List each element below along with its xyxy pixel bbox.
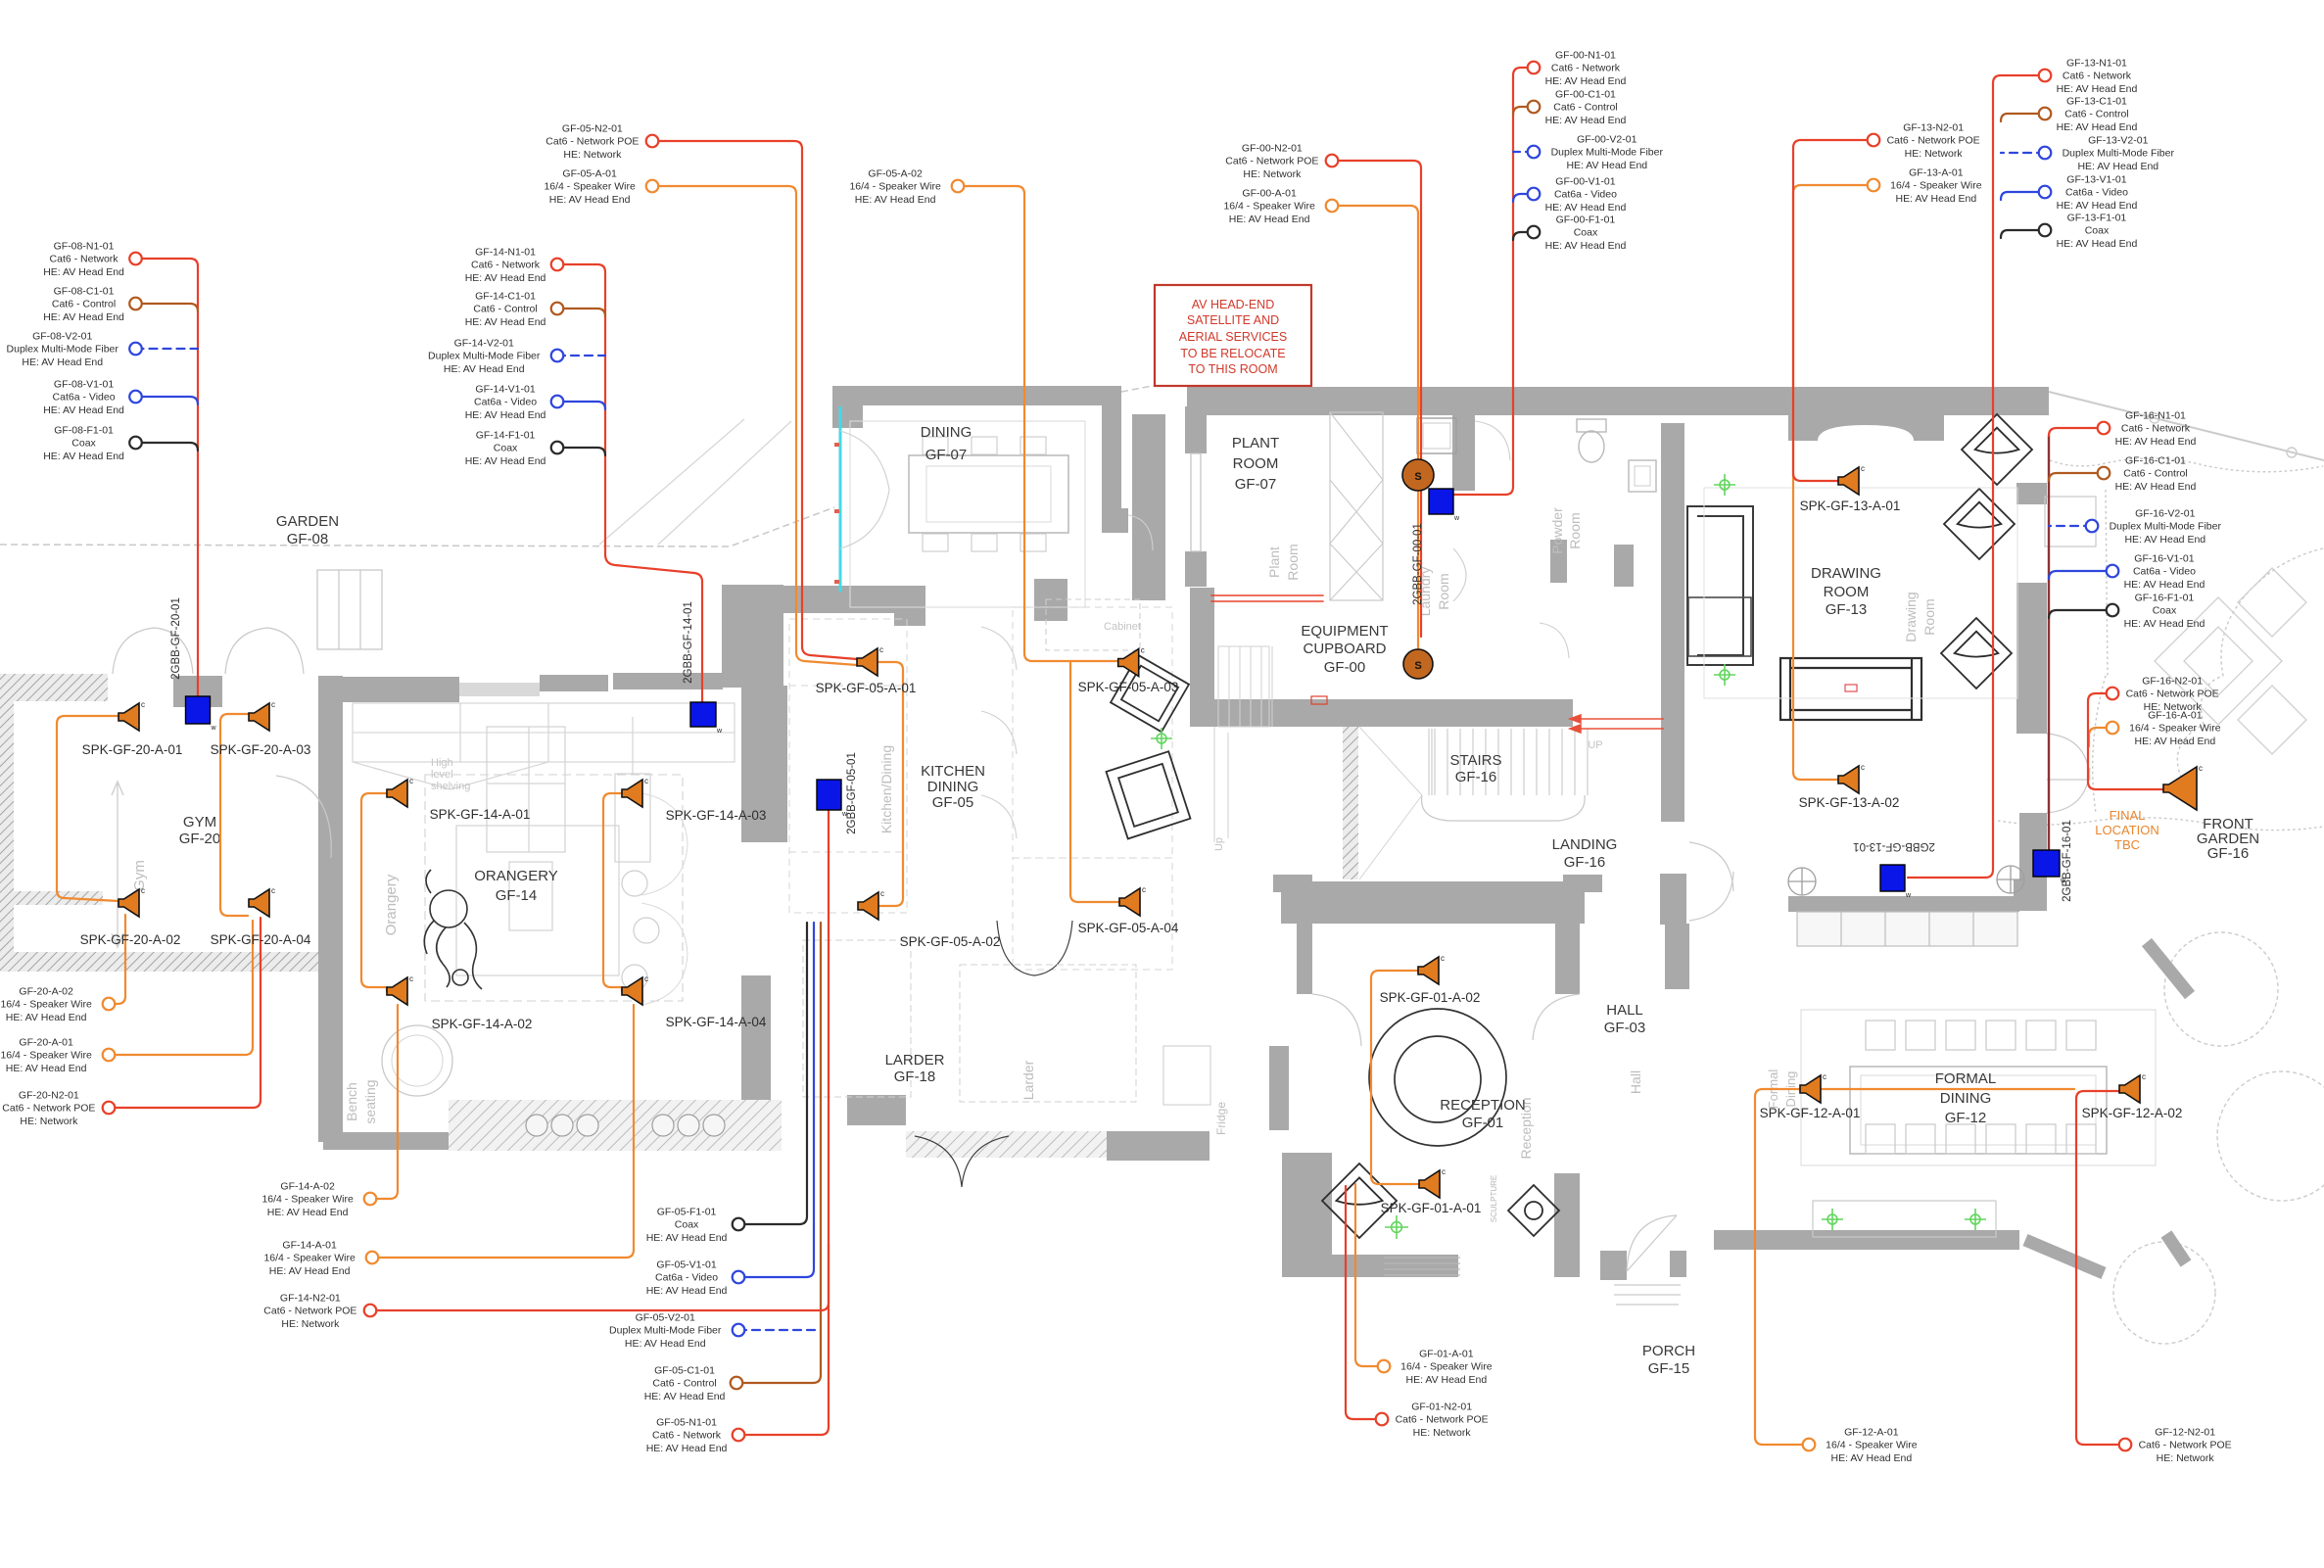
svg-text:HE: AV Head End: HE: AV Head End <box>2057 238 2138 250</box>
svg-text:Cat6a - Video: Cat6a - Video <box>2065 187 2128 199</box>
svg-text:Cat6 - Control: Cat6 - Control <box>652 1378 716 1390</box>
svg-text:c: c <box>2199 764 2203 773</box>
svg-text:GF-07: GF-07 <box>925 447 968 463</box>
svg-text:16/4 - Speaker Wire: 16/4 - Speaker Wire <box>849 181 941 193</box>
svg-text:SPK-GF-05-A-03: SPK-GF-05-A-03 <box>1078 680 1179 694</box>
svg-text:HE: AV Head End: HE: AV Head End <box>1406 1374 1488 1386</box>
svg-text:16/4 - Speaker Wire: 16/4 - Speaker Wire <box>1826 1440 1918 1451</box>
svg-text:Cat6 - Network POE: Cat6 - Network POE <box>2126 689 2219 700</box>
svg-text:GF-13-N1-01: GF-13-N1-01 <box>2066 57 2127 69</box>
svg-text:16/4 - Speaker Wire: 16/4 - Speaker Wire <box>544 181 636 193</box>
svg-text:HE: AV Head End: HE: AV Head End <box>2057 200 2138 212</box>
svg-text:c: c <box>644 974 648 983</box>
svg-text:GF-16-N1-01: GF-16-N1-01 <box>2125 409 2186 421</box>
svg-text:GF-13-V2-01: GF-13-V2-01 <box>2088 134 2148 146</box>
svg-text:GF-20-A-02: GF-20-A-02 <box>19 985 73 997</box>
svg-text:SPK-GF-05-A-01: SPK-GF-05-A-01 <box>816 681 917 695</box>
svg-text:c: c <box>141 700 145 709</box>
svg-text:GF-13: GF-13 <box>1826 601 1868 618</box>
svg-text:PORCH: PORCH <box>1642 1343 1695 1359</box>
svg-text:w: w <box>1453 515 1460 522</box>
svg-text:Cat6 - Control: Cat6 - Control <box>52 299 116 310</box>
svg-text:16/4 - Speaker Wire: 16/4 - Speaker Wire <box>0 1050 92 1062</box>
svg-text:GF-00-C1-01: GF-00-C1-01 <box>1555 88 1616 100</box>
svg-text:Gym: Gym <box>131 860 148 891</box>
svg-text:GF-14-F1-01: GF-14-F1-01 <box>476 429 536 441</box>
svg-text:c: c <box>1442 1167 1446 1176</box>
svg-text:HE: AV Head End: HE: AV Head End <box>1545 240 1627 252</box>
svg-text:Cabinet: Cabinet <box>1104 621 1141 633</box>
svg-text:GF-05-C1-01: GF-05-C1-01 <box>654 1364 715 1376</box>
svg-text:HE: AV Head End: HE: AV Head End <box>2057 121 2138 133</box>
svg-text:HE: AV Head End: HE: AV Head End <box>2115 436 2197 448</box>
svg-text:HE: AV Head End: HE: AV Head End <box>465 455 546 467</box>
svg-text:2GBB-GF-00-01: 2GBB-GF-00-01 <box>1412 523 1424 605</box>
svg-text:GF-05-A-02: GF-05-A-02 <box>868 167 923 179</box>
svg-text:GF-00-N1-01: GF-00-N1-01 <box>1555 49 1616 61</box>
svg-text:Coax: Coax <box>2085 225 2110 237</box>
svg-text:2GBB-GF-20-01: 2GBB-GF-20-01 <box>170 597 182 680</box>
svg-text:GF-05-F1-01: GF-05-F1-01 <box>657 1206 717 1217</box>
svg-text:HE: Network: HE: Network <box>1413 1427 1472 1439</box>
svg-text:seating: seating <box>362 1079 378 1123</box>
svg-text:16/4 - Speaker Wire: 16/4 - Speaker Wire <box>261 1194 354 1206</box>
svg-text:c: c <box>1861 464 1865 473</box>
svg-text:HE: AV Head End: HE: AV Head End <box>855 194 936 206</box>
svg-text:Larder: Larder <box>1020 1060 1036 1100</box>
svg-text:DINING: DINING <box>927 779 979 795</box>
svg-text:HE: AV Head End: HE: AV Head End <box>43 404 124 416</box>
svg-text:GF-14-A-01: GF-14-A-01 <box>282 1239 337 1251</box>
svg-text:SATELLITE AND: SATELLITE AND <box>1187 313 1279 327</box>
svg-text:GF-16: GF-16 <box>1455 769 1497 785</box>
svg-text:level: level <box>431 769 453 781</box>
svg-text:Cat6 - Network POE: Cat6 - Network POE <box>1887 135 1980 147</box>
svg-text:GF-01: GF-01 <box>1462 1115 1504 1131</box>
svg-text:Drawing: Drawing <box>1903 592 1919 641</box>
svg-text:GF-05-V2-01: GF-05-V2-01 <box>636 1311 695 1323</box>
svg-text:HE: AV Head End: HE: AV Head End <box>6 1012 87 1023</box>
svg-text:c: c <box>409 777 413 785</box>
svg-text:HE: Network: HE: Network <box>281 1318 340 1330</box>
svg-text:HE: AV Head End: HE: AV Head End <box>2135 736 2216 747</box>
svg-text:RECEPTION: RECEPTION <box>1440 1097 1526 1114</box>
svg-text:HE: AV Head End: HE: AV Head End <box>1545 202 1627 214</box>
svg-text:LARDER: LARDER <box>885 1052 945 1069</box>
svg-text:GF-14-C1-01: GF-14-C1-01 <box>475 290 536 302</box>
svg-text:GARDEN: GARDEN <box>276 513 339 530</box>
svg-text:SPK-GF-05-A-02: SPK-GF-05-A-02 <box>900 934 1001 949</box>
svg-text:FINAL: FINAL <box>2110 808 2146 823</box>
svg-text:2GBB-GF-05-01: 2GBB-GF-05-01 <box>846 752 858 834</box>
svg-text:HALL: HALL <box>1606 1002 1643 1019</box>
svg-text:HE: AV Head End: HE: AV Head End <box>465 316 546 328</box>
svg-text:16/4 - Speaker Wire: 16/4 - Speaker Wire <box>263 1253 356 1264</box>
svg-text:HE: AV Head End: HE: AV Head End <box>465 272 546 284</box>
svg-text:GF-18: GF-18 <box>894 1069 936 1085</box>
svg-text:GF-05-V1-01: GF-05-V1-01 <box>656 1259 716 1270</box>
svg-text:GF-08-N1-01: GF-08-N1-01 <box>54 240 115 252</box>
svg-text:CUPBOARD: CUPBOARD <box>1303 641 1386 657</box>
svg-text:Cat6 - Network: Cat6 - Network <box>1551 63 1621 74</box>
svg-text:DINING: DINING <box>1940 1090 1992 1107</box>
svg-text:16/4 - Speaker Wire: 16/4 - Speaker Wire <box>1400 1361 1493 1373</box>
svg-text:HE: AV Head End: HE: AV Head End <box>22 356 103 368</box>
svg-text:Duplex Multi-Mode Fiber: Duplex Multi-Mode Fiber <box>1551 147 1664 159</box>
svg-text:c: c <box>271 700 275 709</box>
svg-text:GF-01-A-01: GF-01-A-01 <box>1419 1348 1474 1359</box>
svg-text:SPK-GF-20-A-04: SPK-GF-20-A-04 <box>211 932 311 947</box>
svg-text:GF-05-N2-01: GF-05-N2-01 <box>562 122 623 134</box>
svg-text:Cat6 - Network: Cat6 - Network <box>652 1430 722 1442</box>
svg-text:HE: AV Head End: HE: AV Head End <box>644 1391 726 1402</box>
svg-text:2GBB-GF-14-01: 2GBB-GF-14-01 <box>683 601 694 684</box>
svg-text:STAIRS: STAIRS <box>1449 752 1501 769</box>
svg-text:HE: AV Head End: HE: AV Head End <box>2124 534 2205 546</box>
svg-text:SPK-GF-20-A-01: SPK-GF-20-A-01 <box>82 742 183 757</box>
svg-text:HE: AV Head End: HE: AV Head End <box>625 1338 706 1350</box>
svg-text:DRAWING: DRAWING <box>1811 565 1881 582</box>
svg-text:Cat6 - Network: Cat6 - Network <box>2063 71 2132 82</box>
svg-text:LOCATION: LOCATION <box>2095 823 2159 837</box>
svg-text:GF-15: GF-15 <box>1648 1360 1690 1377</box>
svg-text:w: w <box>1905 892 1912 899</box>
svg-text:Room: Room <box>1285 544 1301 580</box>
svg-text:Powder: Powder <box>1549 507 1565 554</box>
svg-text:S: S <box>1414 660 1421 672</box>
svg-text:Cat6a - Video: Cat6a - Video <box>655 1272 718 1284</box>
svg-text:GF-16: GF-16 <box>1564 854 1606 871</box>
svg-text:Cat6a - Video: Cat6a - Video <box>2133 566 2196 578</box>
svg-text:Cat6a - Video: Cat6a - Video <box>474 397 537 408</box>
svg-text:HE: AV Head End: HE: AV Head End <box>43 266 124 278</box>
svg-text:c: c <box>1142 885 1146 894</box>
svg-text:GF-16-V1-01: GF-16-V1-01 <box>2134 552 2194 564</box>
svg-text:Cat6 - Network: Cat6 - Network <box>50 254 119 265</box>
svg-text:Bench: Bench <box>344 1082 359 1121</box>
svg-text:GF-00-N2-01: GF-00-N2-01 <box>1242 142 1303 154</box>
svg-text:ROOM: ROOM <box>1233 455 1279 472</box>
svg-text:HE: AV Head End: HE: AV Head End <box>444 363 525 375</box>
svg-text:SCULPTURE: SCULPTURE <box>1490 1175 1498 1222</box>
svg-text:GF-13-F1-01: GF-13-F1-01 <box>2067 212 2127 223</box>
svg-text:ORANGERY: ORANGERY <box>474 868 558 884</box>
svg-text:16/4 - Speaker Wire: 16/4 - Speaker Wire <box>0 999 92 1011</box>
svg-text:HE: Network: HE: Network <box>1243 168 1302 180</box>
svg-text:w: w <box>211 725 217 732</box>
svg-text:DINING: DINING <box>921 424 972 441</box>
svg-text:c: c <box>644 777 648 785</box>
svg-text:shelving: shelving <box>431 781 470 792</box>
svg-text:GF-16: GF-16 <box>2207 845 2250 862</box>
svg-text:Cat6 - Network POE: Cat6 - Network POE <box>1396 1414 1489 1426</box>
svg-text:ROOM: ROOM <box>1824 584 1870 600</box>
svg-text:Room: Room <box>1436 573 1451 609</box>
svg-text:HE: AV Head End: HE: AV Head End <box>267 1207 349 1218</box>
svg-text:Cat6 - Network: Cat6 - Network <box>471 260 541 271</box>
svg-text:GF-08-F1-01: GF-08-F1-01 <box>54 424 114 436</box>
svg-text:GF-16-F1-01: GF-16-F1-01 <box>2135 592 2195 603</box>
svg-text:GF-08-C1-01: GF-08-C1-01 <box>54 285 115 297</box>
svg-text:GF-14-N1-01: GF-14-N1-01 <box>475 246 536 258</box>
svg-text:SPK-GF-05-A-04: SPK-GF-05-A-04 <box>1078 921 1179 935</box>
svg-text:GF-13-N2-01: GF-13-N2-01 <box>1903 121 1964 133</box>
svg-text:Plant: Plant <box>1266 546 1282 578</box>
svg-text:TO BE RELOCATE: TO BE RELOCATE <box>1180 347 1285 360</box>
svg-text:SPK-GF-20-A-02: SPK-GF-20-A-02 <box>80 932 181 947</box>
svg-text:SPK-GF-20-A-03: SPK-GF-20-A-03 <box>211 742 311 757</box>
svg-text:SPK-GF-12-A-02: SPK-GF-12-A-02 <box>2082 1106 2183 1120</box>
svg-text:GF-08-V2-01: GF-08-V2-01 <box>32 330 92 342</box>
svg-text:HE: AV Head End: HE: AV Head End <box>549 194 631 206</box>
svg-text:HE: AV Head End: HE: AV Head End <box>6 1063 87 1074</box>
svg-text:Fridge: Fridge <box>1214 1102 1228 1135</box>
svg-text:GF-16-C1-01: GF-16-C1-01 <box>2125 454 2186 466</box>
svg-text:Cat6a - Video: Cat6a - Video <box>1554 189 1617 201</box>
svg-text:Duplex Multi-Mode Fiber: Duplex Multi-Mode Fiber <box>2110 521 2222 533</box>
svg-text:HE: AV Head End: HE: AV Head End <box>2057 83 2138 95</box>
svg-text:Room: Room <box>1921 598 1937 635</box>
svg-text:SPK-GF-14-A-01: SPK-GF-14-A-01 <box>430 807 531 822</box>
svg-text:Cat6 - Network POE: Cat6 - Network POE <box>1225 156 1318 167</box>
svg-text:PLANT: PLANT <box>1232 435 1279 451</box>
svg-text:c: c <box>409 974 413 983</box>
svg-text:HE: AV Head End: HE: AV Head End <box>2124 618 2205 630</box>
svg-text:GF-14-N2-01: GF-14-N2-01 <box>280 1292 341 1304</box>
svg-text:Cat6 - Network: Cat6 - Network <box>2121 423 2191 435</box>
svg-text:AV HEAD-END: AV HEAD-END <box>1192 298 1275 311</box>
svg-text:GF-00-F1-01: GF-00-F1-01 <box>1556 214 1616 225</box>
svg-text:UP: UP <box>1588 739 1602 751</box>
svg-text:FORMAL: FORMAL <box>1935 1070 1997 1087</box>
svg-text:Hall: Hall <box>1628 1070 1643 1094</box>
svg-text:Up: Up <box>1213 837 1225 851</box>
svg-text:S: S <box>1414 471 1421 483</box>
svg-text:HE: AV Head End: HE: AV Head End <box>1896 193 1977 205</box>
svg-text:16/4 - Speaker Wire: 16/4 - Speaker Wire <box>2129 723 2221 735</box>
svg-text:GF-16-N2-01: GF-16-N2-01 <box>2142 675 2203 687</box>
svg-text:GF-20-A-01: GF-20-A-01 <box>19 1036 73 1048</box>
svg-text:16/4 - Speaker Wire: 16/4 - Speaker Wire <box>1223 201 1315 213</box>
svg-text:HE: AV Head End: HE: AV Head End <box>43 311 124 323</box>
svg-text:GF-13-V1-01: GF-13-V1-01 <box>2066 173 2126 185</box>
svg-text:HE: AV Head End: HE: AV Head End <box>646 1285 728 1297</box>
svg-text:Coax: Coax <box>71 438 96 450</box>
svg-text:GF-14: GF-14 <box>496 887 538 904</box>
svg-text:c: c <box>879 645 883 654</box>
svg-text:EQUIPMENT: EQUIPMENT <box>1301 623 1388 640</box>
svg-text:TBC: TBC <box>2114 837 2140 852</box>
svg-text:GF-13-C1-01: GF-13-C1-01 <box>2066 95 2127 107</box>
svg-text:SPK-GF-01-A-01: SPK-GF-01-A-01 <box>1381 1201 1482 1215</box>
svg-text:w: w <box>716 728 723 735</box>
svg-text:SPK-GF-13-A-01: SPK-GF-13-A-01 <box>1800 499 1901 513</box>
svg-text:HE: AV Head End: HE: AV Head End <box>2115 481 2197 493</box>
svg-text:HE: AV Head End: HE: AV Head End <box>269 1265 351 1277</box>
svg-text:c: c <box>271 886 275 895</box>
svg-text:Orangery: Orangery <box>383 874 400 935</box>
svg-text:GF-05-N1-01: GF-05-N1-01 <box>656 1416 717 1428</box>
svg-text:Cat6 - Network POE: Cat6 - Network POE <box>263 1306 356 1317</box>
svg-text:GF-20: GF-20 <box>179 831 221 847</box>
svg-text:GF-00-V1-01: GF-00-V1-01 <box>1555 175 1615 187</box>
svg-text:16/4 - Speaker Wire: 16/4 - Speaker Wire <box>1890 180 1982 192</box>
svg-text:SPK-GF-14-A-04: SPK-GF-14-A-04 <box>666 1015 767 1029</box>
svg-text:HE: AV Head End: HE: AV Head End <box>1229 214 1310 225</box>
svg-text:2GBB-GF-16-01: 2GBB-GF-16-01 <box>2062 820 2073 902</box>
svg-text:GF-01-N2-01: GF-01-N2-01 <box>1411 1401 1472 1412</box>
svg-text:GF-14-V1-01: GF-14-V1-01 <box>475 383 535 395</box>
svg-text:HE: AV Head End: HE: AV Head End <box>43 451 124 462</box>
svg-text:GF-03: GF-03 <box>1604 1020 1646 1036</box>
svg-text:GF-14-A-02: GF-14-A-02 <box>280 1180 335 1192</box>
svg-text:HE: AV Head End: HE: AV Head End <box>646 1443 728 1454</box>
svg-text:GF-12-N2-01: GF-12-N2-01 <box>2155 1426 2215 1438</box>
svg-text:HE: Network: HE: Network <box>2157 1452 2215 1464</box>
svg-text:HE: AV Head End: HE: AV Head End <box>1545 75 1627 87</box>
svg-text:GF-13-A-01: GF-13-A-01 <box>1909 166 1964 178</box>
svg-text:Cat6 - Network POE: Cat6 - Network POE <box>2 1103 95 1115</box>
svg-text:HE: AV Head End: HE: AV Head End <box>646 1232 728 1244</box>
svg-text:Coax: Coax <box>1574 227 1598 239</box>
svg-text:Cat6 - Network POE: Cat6 - Network POE <box>545 136 639 148</box>
svg-text:GF-05-A-01: GF-05-A-01 <box>562 167 617 179</box>
svg-text:HE: AV Head End: HE: AV Head End <box>1566 160 1647 171</box>
svg-text:HE: AV Head End: HE: AV Head End <box>465 409 546 421</box>
svg-text:c: c <box>1861 763 1865 772</box>
svg-text:TO THIS ROOM: TO THIS ROOM <box>1188 362 1277 376</box>
svg-text:GF-16-A-01: GF-16-A-01 <box>2148 709 2203 721</box>
svg-text:GF-05: GF-05 <box>932 794 974 811</box>
svg-text:SPK-GF-13-A-02: SPK-GF-13-A-02 <box>1799 795 1900 810</box>
svg-text:SPK-GF-12-A-01: SPK-GF-12-A-01 <box>1760 1106 1861 1120</box>
svg-text:Coax: Coax <box>675 1219 699 1231</box>
svg-text:Cat6 - Control: Cat6 - Control <box>1553 102 1617 114</box>
svg-text:Coax: Coax <box>2153 605 2177 617</box>
svg-text:c: c <box>1823 1072 1826 1081</box>
svg-text:GF-20-N2-01: GF-20-N2-01 <box>19 1089 79 1101</box>
svg-text:KITCHEN: KITCHEN <box>921 763 985 780</box>
svg-text:Kitchen/Dining: Kitchen/Dining <box>878 745 894 833</box>
svg-text:GF-00-A-01: GF-00-A-01 <box>1242 187 1297 199</box>
svg-text:HE: Network: HE: Network <box>20 1116 78 1127</box>
svg-text:c: c <box>1141 646 1145 655</box>
svg-text:HE: AV Head End: HE: AV Head End <box>1831 1452 1913 1464</box>
svg-text:c: c <box>880 889 884 898</box>
svg-text:Cat6 - Control: Cat6 - Control <box>473 304 537 315</box>
svg-text:GF-07: GF-07 <box>1235 476 1277 493</box>
svg-text:GYM: GYM <box>183 814 216 831</box>
svg-text:SPK-GF-14-A-03: SPK-GF-14-A-03 <box>666 808 767 823</box>
svg-text:AERIAL SERVICES: AERIAL SERVICES <box>1179 330 1287 344</box>
svg-text:Cat6 - Control: Cat6 - Control <box>2123 468 2187 480</box>
svg-text:LANDING: LANDING <box>1552 836 1618 853</box>
svg-text:GF-08: GF-08 <box>287 531 329 547</box>
svg-text:c: c <box>2142 1072 2146 1081</box>
svg-text:Duplex Multi-Mode Fiber: Duplex Multi-Mode Fiber <box>428 351 541 362</box>
svg-text:SPK-GF-01-A-02: SPK-GF-01-A-02 <box>1380 990 1481 1005</box>
svg-text:GF-00-V2-01: GF-00-V2-01 <box>1577 133 1636 145</box>
svg-text:GF-14-V2-01: GF-14-V2-01 <box>454 337 514 349</box>
svg-text:c: c <box>1441 954 1445 963</box>
svg-text:Room: Room <box>1567 512 1583 548</box>
svg-text:HE: Network: HE: Network <box>1905 148 1964 160</box>
svg-text:Duplex Multi-Mode Fiber: Duplex Multi-Mode Fiber <box>2063 148 2175 160</box>
svg-text:GF-00: GF-00 <box>1324 659 1366 676</box>
svg-text:2GBB-GF-13-01: 2GBB-GF-13-01 <box>1853 840 1935 852</box>
svg-text:High: High <box>431 757 453 769</box>
svg-text:c: c <box>141 886 145 895</box>
svg-text:HE: Network: HE: Network <box>563 149 622 161</box>
svg-text:Cat6 - Control: Cat6 - Control <box>2064 109 2128 120</box>
svg-text:Coax: Coax <box>494 443 518 454</box>
svg-text:HE: AV Head End: HE: AV Head End <box>2124 579 2205 591</box>
svg-text:Cat6a - Video: Cat6a - Video <box>53 392 116 404</box>
svg-text:Duplex Multi-Mode Fiber: Duplex Multi-Mode Fiber <box>7 344 119 356</box>
svg-text:Cat6 - Network POE: Cat6 - Network POE <box>2139 1440 2232 1451</box>
svg-text:GF-12-A-01: GF-12-A-01 <box>1844 1426 1899 1438</box>
svg-text:SPK-GF-14-A-02: SPK-GF-14-A-02 <box>432 1017 533 1031</box>
svg-text:HE: AV Head End: HE: AV Head End <box>2077 161 2158 172</box>
svg-text:Duplex Multi-Mode Fiber: Duplex Multi-Mode Fiber <box>609 1325 722 1337</box>
svg-text:GF-08-V1-01: GF-08-V1-01 <box>54 378 114 390</box>
svg-text:GF-16-V2-01: GF-16-V2-01 <box>2135 507 2195 519</box>
svg-text:GF-12: GF-12 <box>1945 1110 1987 1126</box>
svg-text:HE: AV Head End: HE: AV Head End <box>1545 115 1627 126</box>
